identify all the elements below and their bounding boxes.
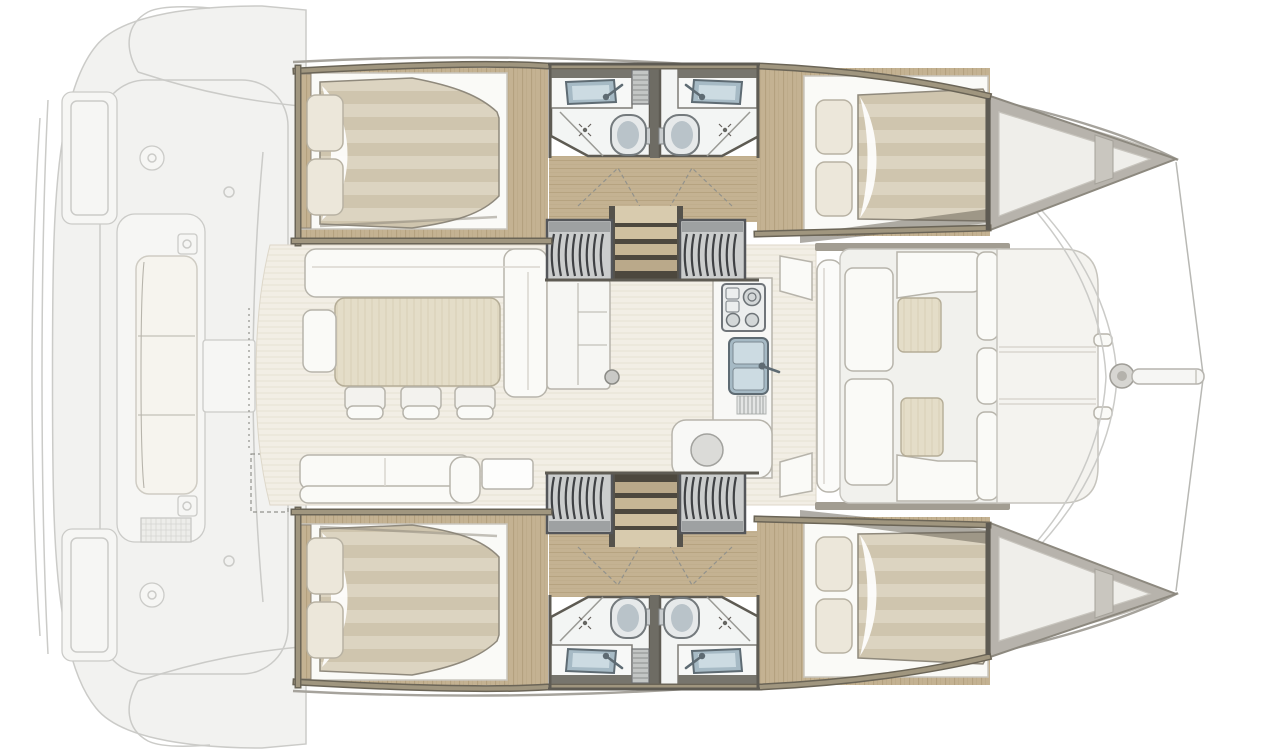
forward-cabin — [757, 68, 990, 243]
saloon-sofa-forward — [300, 455, 480, 503]
stove-icon — [722, 284, 765, 331]
round-basin-icon — [691, 434, 723, 466]
catamaran-floor-plan: catamaran-interior-layout-plan — [0, 0, 1280, 753]
foredeck — [997, 162, 1204, 591]
sink-icon — [686, 80, 742, 104]
pillow — [816, 100, 852, 154]
hull-starboard — [293, 473, 1178, 696]
dining-end-seat — [303, 310, 336, 372]
tambour-locker — [547, 220, 612, 280]
drain-mat — [737, 396, 766, 414]
saloon-cabinet — [547, 279, 619, 389]
aft-cabin — [298, 68, 548, 242]
layout-plan-stage: catamaran-interior-layout-plan — [0, 0, 1280, 753]
winch-icon — [140, 146, 164, 170]
dining-table — [335, 298, 500, 386]
ottoman — [901, 398, 943, 456]
cabinet-knob — [605, 370, 619, 384]
side-table — [482, 459, 533, 489]
forestay-line — [1176, 379, 1203, 591]
forward-door — [817, 260, 842, 492]
forestay-line — [1176, 162, 1203, 374]
dining-chair — [345, 387, 385, 419]
pillow — [816, 162, 852, 216]
cleat-icon — [1094, 334, 1112, 346]
swim-platform-line-inner — [42, 100, 48, 654]
bench-fitting-aft — [178, 234, 197, 254]
ottoman — [898, 298, 941, 352]
mattress — [858, 89, 986, 221]
deck-grate — [141, 518, 191, 542]
bow-locker — [990, 96, 1176, 230]
cockpit-table-ghost — [203, 340, 255, 412]
bench-fitting-fwd — [178, 496, 197, 516]
dining-chair — [401, 387, 441, 419]
saloon — [256, 245, 842, 505]
pillow — [307, 159, 343, 215]
tambour-locker — [680, 220, 745, 280]
dining-chair — [455, 387, 495, 419]
sink-icon — [566, 80, 622, 104]
foredeck-sunpads — [997, 249, 1098, 503]
bowsprit-icon — [1132, 369, 1204, 384]
cockpit-bench — [136, 256, 197, 494]
mast-base-icon-inner — [1117, 371, 1127, 381]
swim-platform-line-outer — [32, 118, 40, 636]
companionway-stairs — [609, 206, 683, 280]
forward-cockpit — [815, 243, 1010, 510]
pillow — [307, 95, 343, 151]
